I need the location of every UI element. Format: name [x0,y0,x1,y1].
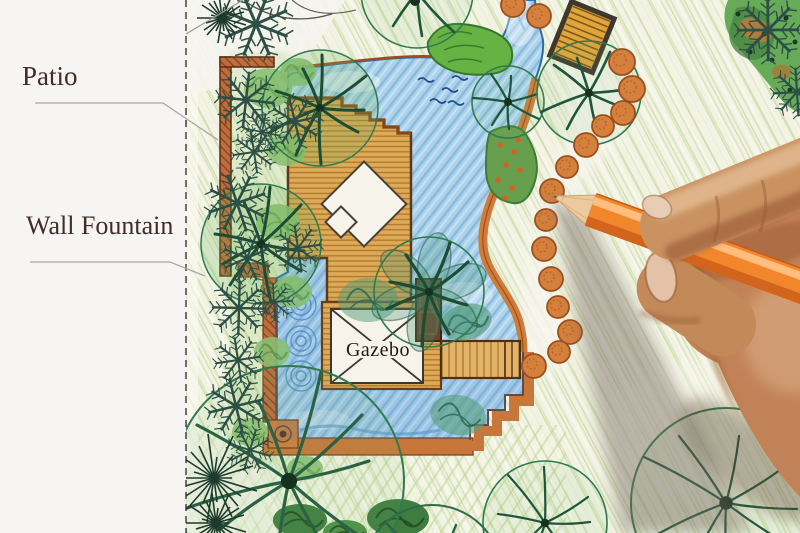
svg-text:Wall Fountain: Wall Fountain [26,211,173,240]
svg-text:Patio: Patio [22,61,78,91]
svg-text:Gazebo: Gazebo [346,339,410,361]
